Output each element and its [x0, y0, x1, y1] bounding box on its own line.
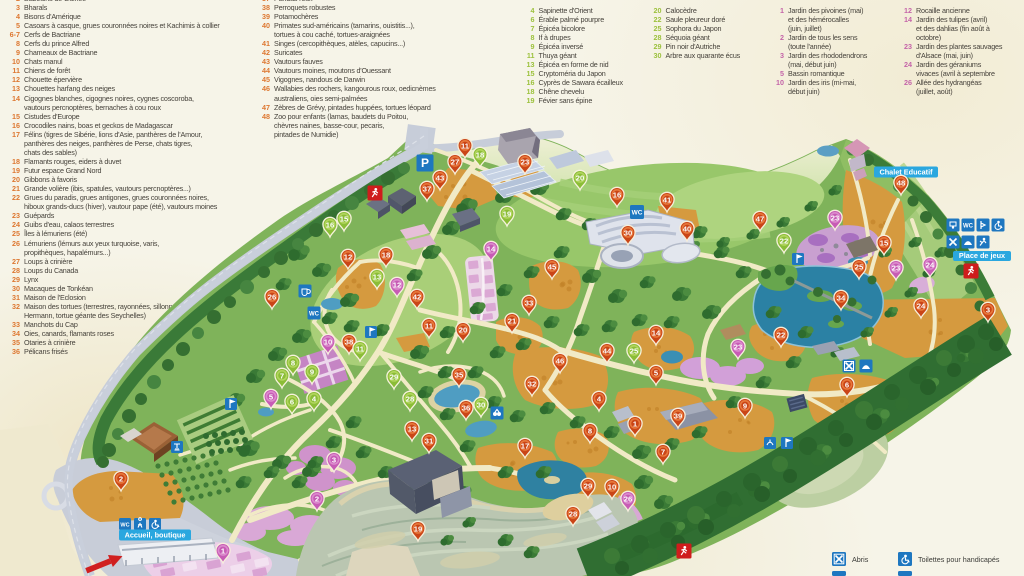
svg-text:21: 21 — [508, 316, 517, 325]
svg-text:26: 26 — [268, 292, 276, 301]
svg-text:6: 6 — [845, 380, 849, 389]
svg-text:WC: WC — [963, 223, 974, 229]
svg-text:34: 34 — [837, 293, 846, 302]
svg-text:48: 48 — [897, 178, 905, 187]
svg-text:12: 12 — [344, 252, 352, 261]
svg-text:Chalet Educatif: Chalet Educatif — [879, 168, 933, 177]
svg-text:22: 22 — [780, 236, 788, 245]
svg-text:26: 26 — [624, 494, 632, 503]
svg-text:36: 36 — [462, 403, 470, 412]
svg-text:41: 41 — [663, 195, 672, 204]
svg-text:Place de jeux: Place de jeux — [959, 251, 1005, 260]
svg-text:19: 19 — [414, 524, 422, 533]
svg-text:20: 20 — [576, 173, 584, 182]
svg-text:40: 40 — [683, 224, 691, 233]
svg-text:17: 17 — [521, 441, 529, 450]
svg-text:32: 32 — [528, 379, 536, 388]
svg-text:18: 18 — [382, 250, 390, 259]
svg-text:15: 15 — [340, 214, 349, 223]
svg-text:Toilettes pour handicapés: Toilettes pour handicapés — [918, 555, 1000, 564]
svg-text:23: 23 — [892, 263, 900, 272]
svg-text:28: 28 — [569, 509, 577, 518]
svg-text:15: 15 — [880, 238, 889, 247]
svg-text:42: 42 — [413, 292, 421, 301]
svg-text:30: 30 — [477, 400, 485, 409]
svg-text:14: 14 — [487, 244, 496, 253]
svg-text:37: 37 — [423, 184, 431, 193]
svg-text:Abris: Abris — [852, 555, 869, 564]
svg-text:9: 9 — [743, 401, 747, 410]
svg-text:2: 2 — [315, 494, 319, 503]
svg-text:24: 24 — [926, 260, 935, 269]
svg-text:25: 25 — [630, 346, 639, 355]
svg-text:7: 7 — [661, 447, 665, 456]
svg-text:11: 11 — [425, 321, 434, 330]
svg-text:39: 39 — [674, 411, 682, 420]
svg-text:22: 22 — [777, 330, 785, 339]
svg-text:19: 19 — [503, 209, 511, 218]
svg-text:23: 23 — [831, 213, 839, 222]
svg-text:P: P — [421, 156, 429, 170]
svg-text:3: 3 — [986, 305, 990, 314]
svg-text:8: 8 — [588, 426, 592, 435]
svg-text:10: 10 — [324, 337, 332, 346]
svg-text:2: 2 — [119, 474, 123, 483]
svg-text:18: 18 — [476, 150, 484, 159]
svg-text:23: 23 — [734, 342, 742, 351]
svg-text:30: 30 — [624, 228, 632, 237]
svg-text:24: 24 — [917, 301, 926, 310]
svg-text:Accueil, boutique: Accueil, boutique — [125, 531, 186, 540]
svg-text:38: 38 — [345, 337, 353, 346]
svg-text:44: 44 — [603, 346, 612, 355]
svg-text:11: 11 — [461, 141, 470, 150]
svg-text:WC: WC — [632, 210, 643, 217]
svg-text:13: 13 — [373, 272, 381, 281]
svg-text:33: 33 — [525, 298, 533, 307]
svg-text:28: 28 — [406, 394, 414, 403]
svg-text:29: 29 — [584, 481, 592, 490]
svg-text:10: 10 — [608, 482, 616, 491]
svg-text:31: 31 — [425, 436, 434, 445]
svg-text:20: 20 — [459, 325, 467, 334]
svg-text:14: 14 — [652, 328, 661, 337]
svg-text:8: 8 — [291, 358, 295, 367]
svg-text:47: 47 — [756, 214, 764, 223]
svg-text:12: 12 — [393, 280, 401, 289]
svg-text:13: 13 — [408, 424, 416, 433]
svg-text:7: 7 — [280, 371, 284, 380]
svg-text:16: 16 — [613, 190, 621, 199]
svg-text:25: 25 — [855, 262, 864, 271]
svg-text:9: 9 — [310, 367, 314, 376]
svg-text:23: 23 — [521, 157, 529, 166]
svg-text:27: 27 — [451, 157, 459, 166]
svg-text:3: 3 — [332, 455, 336, 464]
svg-text:46: 46 — [556, 356, 564, 365]
svg-text:43: 43 — [436, 173, 444, 182]
svg-text:16: 16 — [326, 220, 334, 229]
svg-text:45: 45 — [548, 262, 557, 271]
svg-text:WC: WC — [120, 522, 129, 528]
svg-text:11: 11 — [356, 344, 365, 353]
svg-text:29: 29 — [390, 372, 398, 381]
svg-text:WC: WC — [309, 312, 320, 318]
svg-text:6: 6 — [290, 397, 294, 406]
svg-text:35: 35 — [455, 370, 464, 379]
